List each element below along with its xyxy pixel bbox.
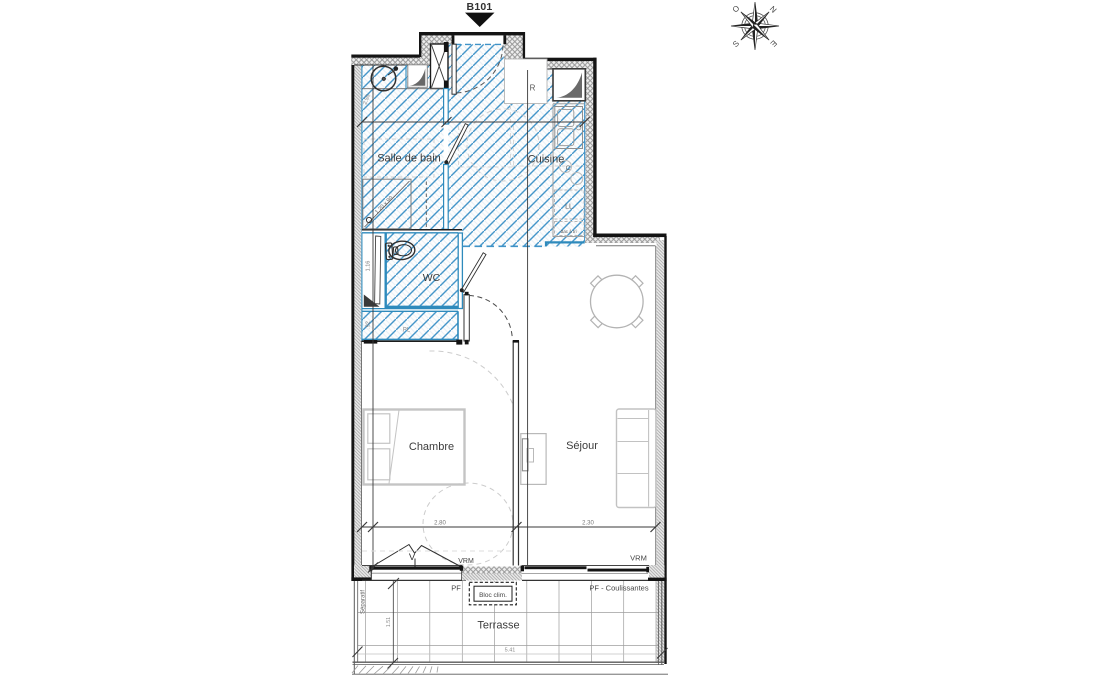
svg-text:Cuisine: Cuisine <box>528 154 565 166</box>
svg-text:.92: .92 <box>366 321 372 329</box>
svg-text:Bloc clim.: Bloc clim. <box>479 592 507 599</box>
svg-text:PL: PL <box>403 328 411 334</box>
svg-text:5.41: 5.41 <box>505 648 516 654</box>
svg-text:B101: B101 <box>467 1 493 13</box>
svg-text:Bac à tri: Bac à tri <box>560 229 576 234</box>
svg-text:Terrasse: Terrasse <box>477 620 519 632</box>
svg-text:WC: WC <box>423 272 441 284</box>
svg-text:Séparatif: Séparatif <box>361 590 367 614</box>
svg-text:R: R <box>530 84 536 93</box>
svg-text:1.51: 1.51 <box>386 617 392 627</box>
svg-text:C: C <box>566 165 571 172</box>
svg-text:V: V <box>409 552 416 563</box>
svg-text:Séjour: Séjour <box>566 440 598 452</box>
svg-text:VRM: VRM <box>458 558 474 565</box>
svg-text:1.16: 1.16 <box>366 261 372 272</box>
svg-text:PF - Coulissantes: PF - Coulissantes <box>589 584 648 593</box>
svg-text:2.30: 2.30 <box>582 521 594 527</box>
svg-text:Salle de bain: Salle de bain <box>377 153 441 165</box>
svg-text:Chambre: Chambre <box>409 441 454 453</box>
svg-text:2.80: 2.80 <box>434 521 446 527</box>
svg-text:LL: LL <box>565 204 573 211</box>
svg-text:PF: PF <box>451 584 461 593</box>
svg-text:VRM: VRM <box>630 554 647 563</box>
